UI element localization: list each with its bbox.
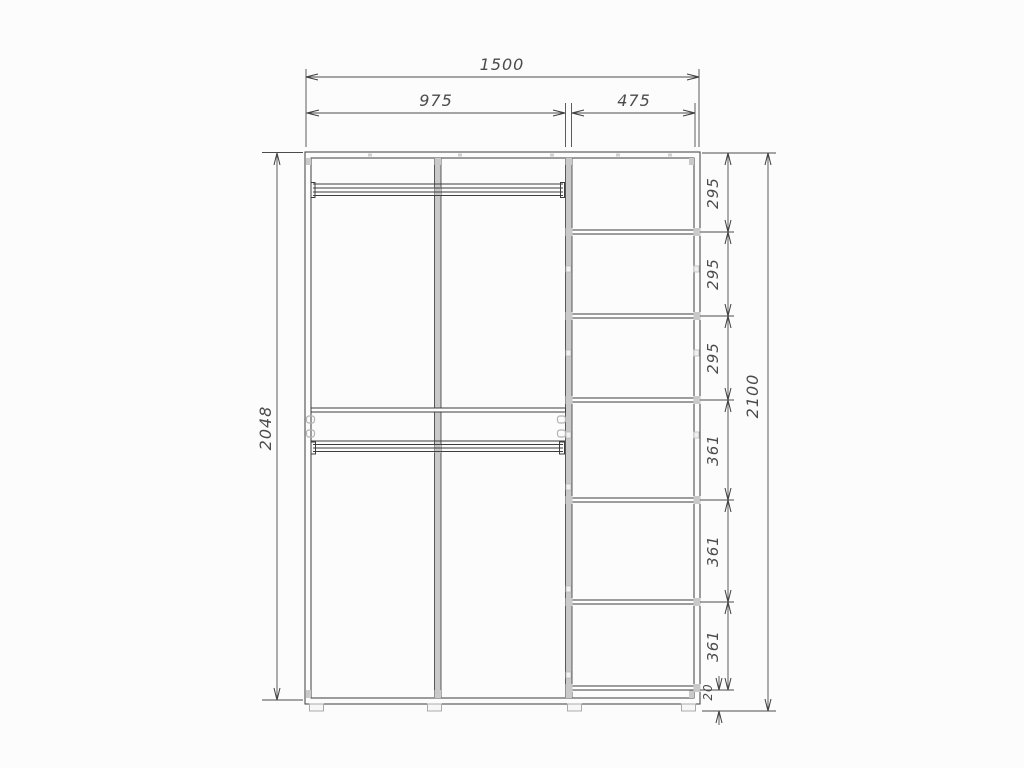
dim-side-panel-height: 2048 bbox=[256, 153, 303, 701]
dim-spacing-1-label: 295 bbox=[704, 177, 722, 209]
dim-overall-height-label: 2100 bbox=[743, 374, 762, 419]
wardrobe-elevation-drawing: 1500 975 475 2048 2100 bbox=[0, 0, 1024, 768]
dim-bottom-gap: 20 bbox=[701, 676, 722, 725]
dim-side-panel-height-label: 2048 bbox=[256, 406, 275, 451]
dim-spacing-6-label: 361 bbox=[704, 630, 722, 662]
right-section-shelves bbox=[566, 228, 701, 692]
dim-right-section-width: 475 bbox=[572, 91, 696, 147]
dim-spacing-3-label: 295 bbox=[704, 342, 722, 374]
dim-spacing-5-label: 361 bbox=[704, 535, 722, 567]
dim-spacing-2-label: 295 bbox=[704, 258, 722, 290]
section-divider-panel bbox=[566, 158, 573, 698]
cabinet-carcass bbox=[305, 152, 700, 704]
dim-spacing-4-label: 361 bbox=[704, 434, 722, 466]
dim-left-section-width: 975 bbox=[306, 91, 566, 147]
junction-fittings bbox=[306, 158, 694, 698]
dim-shelf-spacing-chain: 295 295 295 361 361 361 bbox=[700, 153, 734, 690]
adjustable-feet bbox=[310, 704, 696, 711]
dim-overall-width-label: 1500 bbox=[480, 55, 525, 74]
dim-overall-height: 2100 bbox=[702, 153, 776, 711]
dim-right-section-width-label: 475 bbox=[617, 91, 651, 110]
middle-shelf bbox=[311, 408, 566, 412]
dim-bottom-gap-label: 20 bbox=[701, 683, 715, 700]
dim-left-section-width-label: 975 bbox=[419, 91, 453, 110]
center-divider-panel bbox=[435, 158, 442, 698]
drawing-canvas: 1500 975 475 2048 2100 bbox=[0, 0, 1024, 768]
